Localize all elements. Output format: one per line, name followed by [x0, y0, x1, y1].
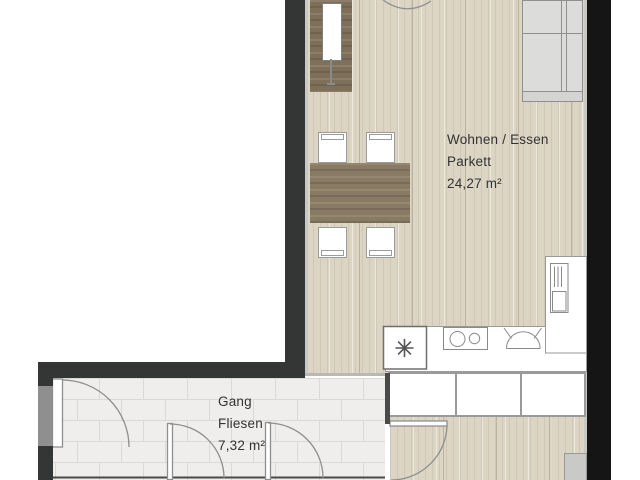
chair [366, 132, 395, 163]
sofa-backrest-line [566, 1, 567, 92]
room-name: Wohnen / Essen [447, 129, 549, 151]
floor-plan: Wohnen / Essen Parkett 24,27 m² Gang Fli… [0, 0, 640, 480]
room-floor-type: Fliesen [218, 413, 265, 435]
chair [318, 132, 347, 163]
wall-left-vertical [285, 0, 305, 378]
sofa [522, 0, 583, 102]
room-area: 24,27 m² [447, 173, 549, 195]
tv-screen [322, 3, 342, 61]
fixture-box [564, 453, 587, 480]
door-opening-hallway-left [38, 386, 53, 446]
door-leaf-bottom-1 [168, 424, 173, 480]
tv-stand-base [327, 83, 335, 85]
oven-tall-unit-icon [551, 264, 569, 313]
chair [318, 227, 347, 258]
door-leaf-bottom-right-room [390, 421, 447, 426]
freezer-snowflake-icon [396, 339, 414, 357]
wall-right [587, 0, 611, 480]
dining-table [310, 163, 410, 223]
chair-backrest [369, 250, 392, 256]
room-area: 7,32 m² [218, 435, 265, 457]
wall-horizontal-living-hallway [38, 362, 305, 378]
sofa-cushion-line [523, 33, 582, 34]
kitchen [384, 257, 587, 372]
closet-divider [455, 374, 457, 415]
room-name: Gang [218, 391, 265, 413]
room-floor-type: Parkett [447, 151, 549, 173]
door-swing-arc-top [383, 0, 431, 9]
built-in-closet [388, 372, 586, 417]
tv-stand-stem [330, 59, 332, 84]
hallway-label: Gang Fliesen 7,32 m² [218, 391, 265, 457]
cooktop-burners-icon [444, 328, 488, 350]
wall-hallway-room-divider [385, 373, 390, 424]
living-room-label: Wohnen / Essen Parkett 24,27 m² [447, 129, 549, 195]
door-leaf-bottom-2 [266, 423, 271, 480]
chair [366, 227, 395, 258]
door-leaf-left [53, 379, 63, 447]
chair-backrest [321, 134, 344, 140]
chair-backrest [369, 134, 392, 140]
sofa-backrest-line [561, 1, 562, 92]
door-swing-arc-bottom-right-room [391, 426, 447, 480]
sofa-armrest [523, 91, 582, 101]
chair-backrest [321, 250, 344, 256]
closet-divider [520, 374, 522, 415]
